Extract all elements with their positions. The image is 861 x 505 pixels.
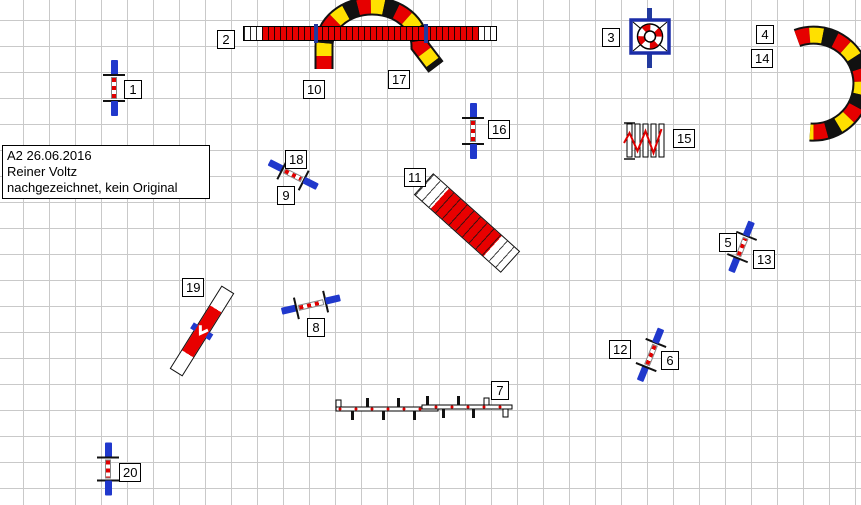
- long-bar-tick-marks: [244, 27, 496, 40]
- obstacle-11-straight-tunnel: [414, 173, 520, 273]
- jump-bar: [470, 120, 476, 142]
- jump-wing: [325, 294, 341, 304]
- obstacle-label-9: 9: [277, 186, 295, 205]
- jump-wing: [470, 103, 477, 118]
- obstacle-label-20: 20: [119, 463, 141, 482]
- obstacle-label-12: 12: [609, 340, 631, 359]
- jump-bar: [644, 344, 658, 367]
- obstacle-15-weave-poles: [618, 115, 678, 165]
- course-author: Reiner Voltz: [7, 164, 205, 180]
- obstacle-label-7: 7: [491, 381, 509, 400]
- tire-ring-inner: [645, 31, 656, 42]
- obstacle-1-jump: [103, 60, 125, 116]
- obstacle-label-17: 17: [388, 70, 410, 89]
- jump-wing: [105, 481, 112, 496]
- obstacle-label-4: 4: [756, 25, 774, 44]
- obstacle-label-11: 11: [404, 168, 426, 187]
- jump-bar: [105, 460, 111, 479]
- jump-wing: [470, 144, 477, 159]
- jump-wing: [105, 443, 112, 458]
- obstacle-label-15: 15: [673, 129, 695, 148]
- obstacle-label-18: 18: [285, 150, 307, 169]
- jump-bar: [735, 237, 748, 258]
- obstacle-19-seesaw: [170, 285, 235, 376]
- agility-course-diagram: A2 26.06.2016 Reiner Voltz nachgezeichne…: [0, 0, 861, 505]
- course-title: A2 26.06.2016: [7, 148, 205, 164]
- obstacle-3-tire-jump: [628, 8, 674, 70]
- jump-bar: [111, 77, 117, 99]
- obstacle-4-14-curved-tunnel: [770, 20, 861, 145]
- course-note: nachgezeichnet, kein Original: [7, 180, 205, 196]
- obstacle-2-long-bar: [243, 26, 497, 41]
- obstacle-label-2: 2: [217, 30, 235, 49]
- course-info-box: A2 26.06.2016 Reiner Voltz nachgezeichne…: [2, 145, 210, 199]
- obstacle-20-jump: [97, 443, 119, 496]
- obstacle-label-19: 19: [182, 278, 204, 297]
- obstacle-label-3: 3: [602, 28, 620, 47]
- jump-wing: [111, 60, 118, 75]
- obstacle-label-13: 13: [753, 250, 775, 269]
- obstacle-7-long-jump: [332, 394, 517, 426]
- long-bar-left-marker: [314, 24, 318, 43]
- obstacle-label-8: 8: [307, 318, 325, 337]
- obstacle-label-16: 16: [488, 120, 510, 139]
- obstacle-label-10: 10: [303, 80, 325, 99]
- jump-wing: [302, 177, 319, 190]
- obstacle-label-6: 6: [661, 351, 679, 370]
- long-bar-right-marker: [424, 24, 428, 43]
- obstacle-16-jump: [462, 103, 484, 159]
- obstacle-label-1: 1: [124, 80, 142, 99]
- jump-bar: [283, 168, 304, 182]
- jump-wing: [111, 101, 118, 116]
- jump-wing: [743, 220, 755, 237]
- obstacle-label-5: 5: [719, 233, 737, 252]
- jump-wing: [652, 328, 664, 345]
- obstacle-label-14: 14: [751, 49, 773, 68]
- jump-bar: [298, 299, 325, 311]
